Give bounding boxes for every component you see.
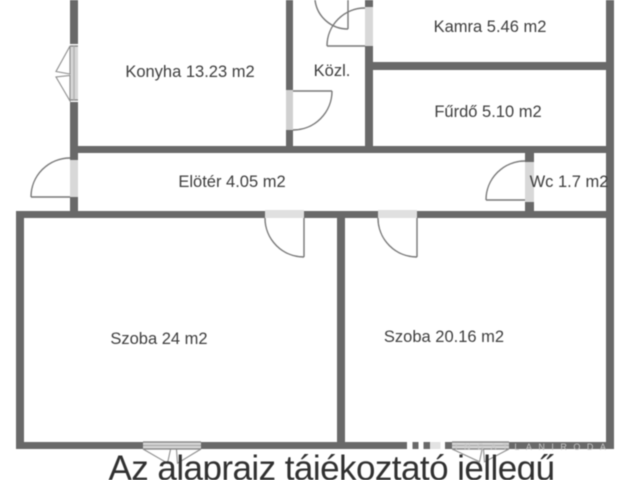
svg-text:Wc 1.7 m2: Wc 1.7 m2 xyxy=(530,173,609,191)
svg-text:Elötér 4.05 m2: Elötér 4.05 m2 xyxy=(178,173,285,191)
svg-text:Szoba 20.16 m2: Szoba 20.16 m2 xyxy=(384,328,504,346)
svg-text:Fűrdő 5.10 m2: Fűrdő 5.10 m2 xyxy=(434,103,541,121)
svg-text:Szoba 24 m2: Szoba 24 m2 xyxy=(110,330,207,348)
svg-text:Közl.: Közl. xyxy=(314,62,351,80)
svg-text:Az alaprajz tájékoztató jelleg: Az alaprajz tájékoztató jellegű xyxy=(109,449,555,480)
svg-text:Konyha 13.23 m2: Konyha 13.23 m2 xyxy=(125,63,254,81)
svg-text:Kamra 5.46 m2: Kamra 5.46 m2 xyxy=(434,18,547,36)
